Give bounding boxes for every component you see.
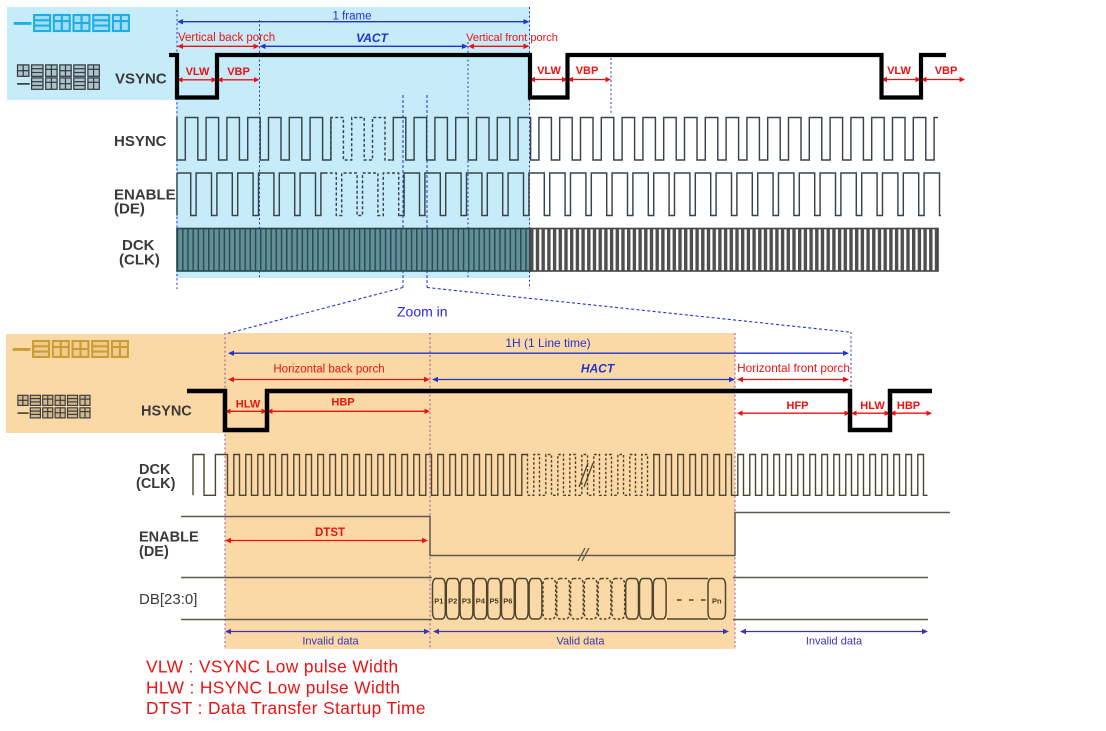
svg-text:(CLK): (CLK) xyxy=(136,476,176,492)
svg-text:VBP: VBP xyxy=(576,65,599,77)
svg-text:Invalid data: Invalid data xyxy=(302,636,359,648)
svg-text:VLW : VSYNC Low pulse Width: VLW : VSYNC Low pulse Width xyxy=(146,657,399,677)
svg-text:HFP: HFP xyxy=(787,400,809,412)
svg-text:DTST : Data Transfer Startup T: DTST : Data Transfer Startup Time xyxy=(146,698,426,718)
svg-text:Vertical back porch: Vertical back porch xyxy=(178,32,275,44)
svg-text:HSYNC: HSYNC xyxy=(141,404,192,420)
svg-text:(CLK): (CLK) xyxy=(119,252,160,269)
svg-text:VSYNC: VSYNC xyxy=(115,71,167,88)
svg-text:DTST: DTST xyxy=(315,527,345,539)
svg-text:P1: P1 xyxy=(434,597,443,606)
svg-text:P4: P4 xyxy=(476,597,486,606)
svg-text:Horizontal back porch: Horizontal back porch xyxy=(273,364,384,376)
svg-text:VBP: VBP xyxy=(227,66,250,78)
svg-text:Zoom in: Zoom in xyxy=(397,304,448,320)
svg-text:P5: P5 xyxy=(490,597,499,606)
svg-text:HLW : HSYNC Low pulse Width: HLW : HSYNC Low pulse Width xyxy=(146,678,400,698)
svg-text:Horizontal front porch: Horizontal front porch xyxy=(737,361,850,375)
svg-text:HLW: HLW xyxy=(860,400,885,412)
svg-text:HBP: HBP xyxy=(331,397,354,409)
svg-text:VLW: VLW xyxy=(887,65,911,77)
svg-text:P6: P6 xyxy=(503,597,512,606)
svg-text:VLW: VLW xyxy=(537,65,561,77)
svg-text:VLW: VLW xyxy=(186,66,210,78)
svg-text:DB[23:0]: DB[23:0] xyxy=(139,591,197,608)
svg-text:HACT: HACT xyxy=(581,362,616,376)
svg-text:VACT: VACT xyxy=(356,31,389,45)
svg-text:Invalid data: Invalid data xyxy=(806,636,863,648)
svg-text:HBP: HBP xyxy=(897,400,920,412)
svg-text:(DE): (DE) xyxy=(139,544,169,560)
svg-text:P3: P3 xyxy=(462,597,471,606)
svg-text:P2: P2 xyxy=(448,597,457,606)
svg-text:VBP: VBP xyxy=(935,65,958,77)
svg-text:HLW: HLW xyxy=(236,399,261,411)
svg-text:Vertical front porch: Vertical front porch xyxy=(466,32,558,44)
svg-text:(DE): (DE) xyxy=(114,201,145,218)
svg-text:HSYNC: HSYNC xyxy=(114,133,167,150)
svg-text:Valid data: Valid data xyxy=(556,636,605,648)
svg-text:1H (1 Line time): 1H (1 Line time) xyxy=(505,336,590,350)
svg-text:Pn: Pn xyxy=(712,597,722,606)
svg-text:1 frame: 1 frame xyxy=(333,11,372,23)
